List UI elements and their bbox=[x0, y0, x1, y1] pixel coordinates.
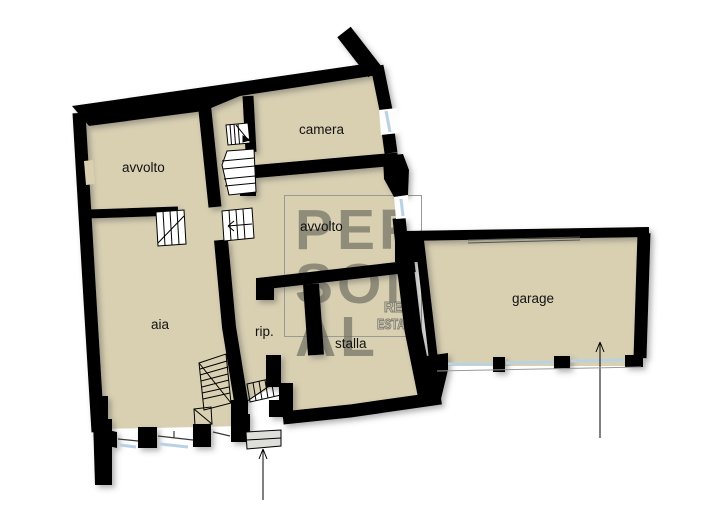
svg-text:garage: garage bbox=[512, 291, 554, 306]
svg-text:aia: aia bbox=[151, 317, 170, 332]
svg-text:avvolto: avvolto bbox=[300, 219, 343, 234]
svg-text:stalla: stalla bbox=[335, 336, 367, 351]
svg-text:avvolto: avvolto bbox=[122, 160, 165, 175]
svg-text:camera: camera bbox=[299, 122, 345, 137]
svg-text:rip.: rip. bbox=[255, 324, 274, 339]
